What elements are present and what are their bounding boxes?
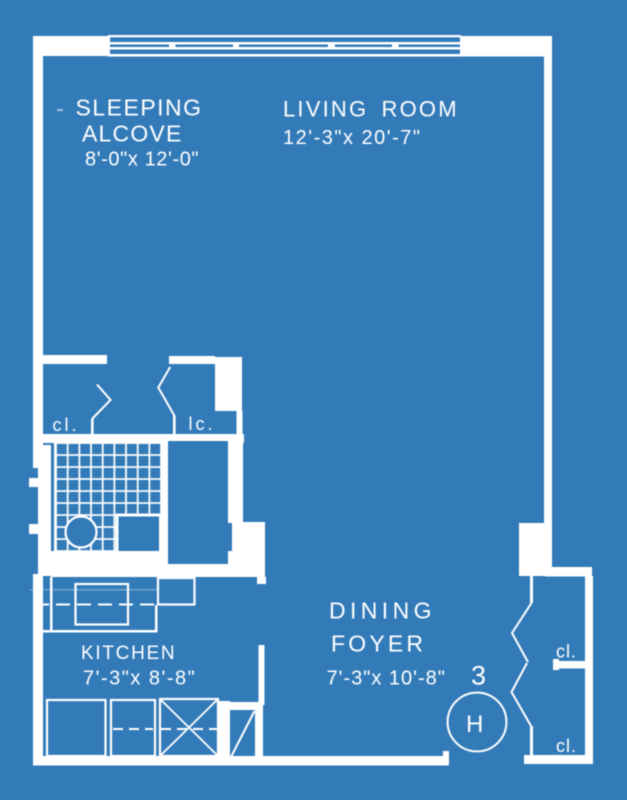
svg-text:FOYER: FOYER — [331, 631, 426, 657]
svg-text:KITCHEN: KITCHEN — [81, 643, 176, 664]
svg-text:3: 3 — [471, 661, 486, 691]
svg-text:DINING: DINING — [329, 598, 436, 624]
svg-text:ALCOVE: ALCOVE — [82, 121, 183, 147]
svg-text:7'-3"x 8'-8": 7'-3"x 8'-8" — [83, 668, 196, 690]
svg-text:LIVING ROOM: LIVING ROOM — [283, 97, 459, 122]
svg-text:8'-0"x 12'-0": 8'-0"x 12'-0" — [85, 149, 199, 171]
svg-text:cl.: cl. — [556, 642, 577, 662]
svg-text:H: H — [466, 711, 483, 738]
svg-text:SLEEPING: SLEEPING — [76, 95, 203, 121]
svg-text:7'-3"x 10'-8": 7'-3"x 10'-8" — [327, 668, 446, 690]
svg-text:12'-3"x 20'-7": 12'-3"x 20'-7" — [283, 127, 421, 149]
svg-text:lc.: lc. — [189, 414, 216, 434]
svg-text:cl.: cl. — [53, 415, 80, 435]
svg-text:cl.: cl. — [556, 736, 577, 756]
